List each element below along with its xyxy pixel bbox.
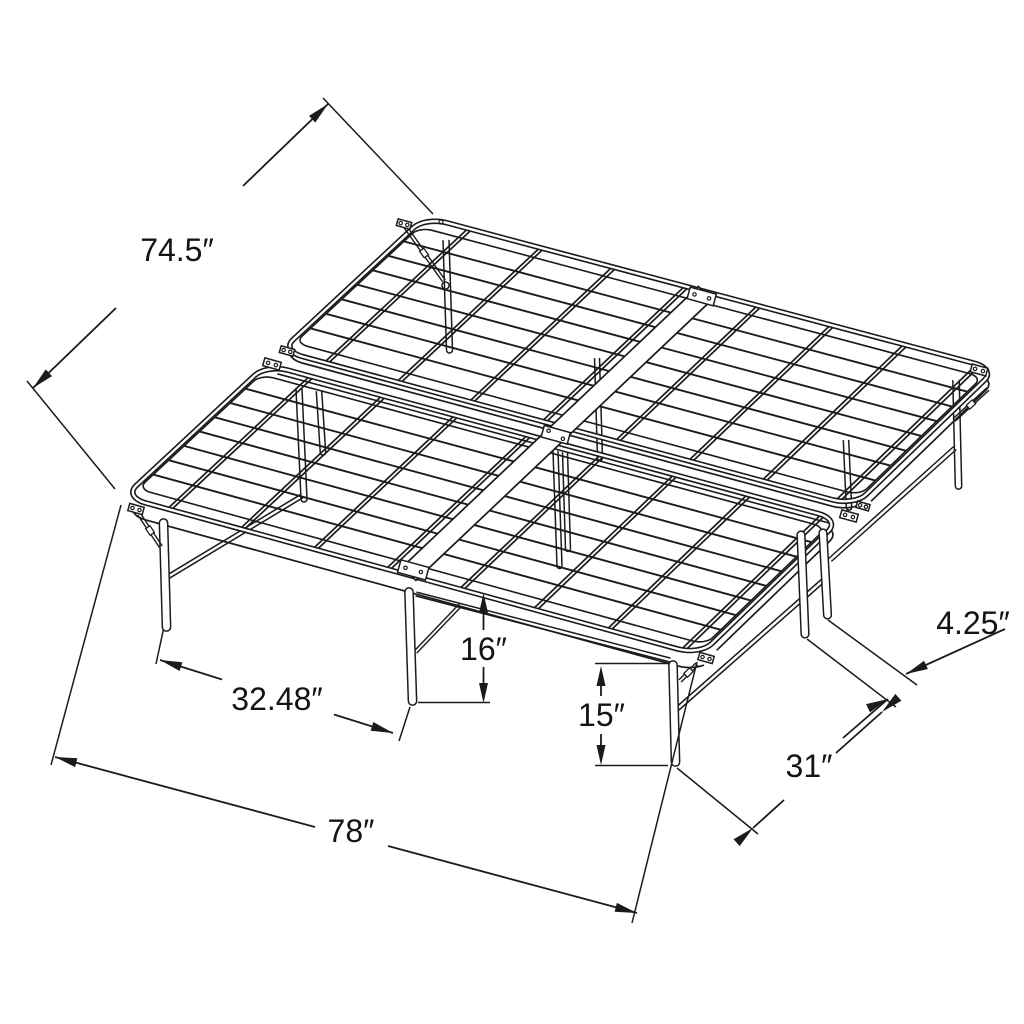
svg-text:16″: 16″: [460, 631, 507, 667]
svg-text:4.25″: 4.25″: [936, 605, 1010, 641]
svg-text:74.5″: 74.5″: [140, 232, 214, 268]
svg-text:31″: 31″: [786, 748, 833, 784]
svg-text:32.48″: 32.48″: [231, 681, 322, 717]
svg-text:78″: 78″: [328, 813, 375, 849]
svg-text:15″: 15″: [578, 697, 625, 733]
